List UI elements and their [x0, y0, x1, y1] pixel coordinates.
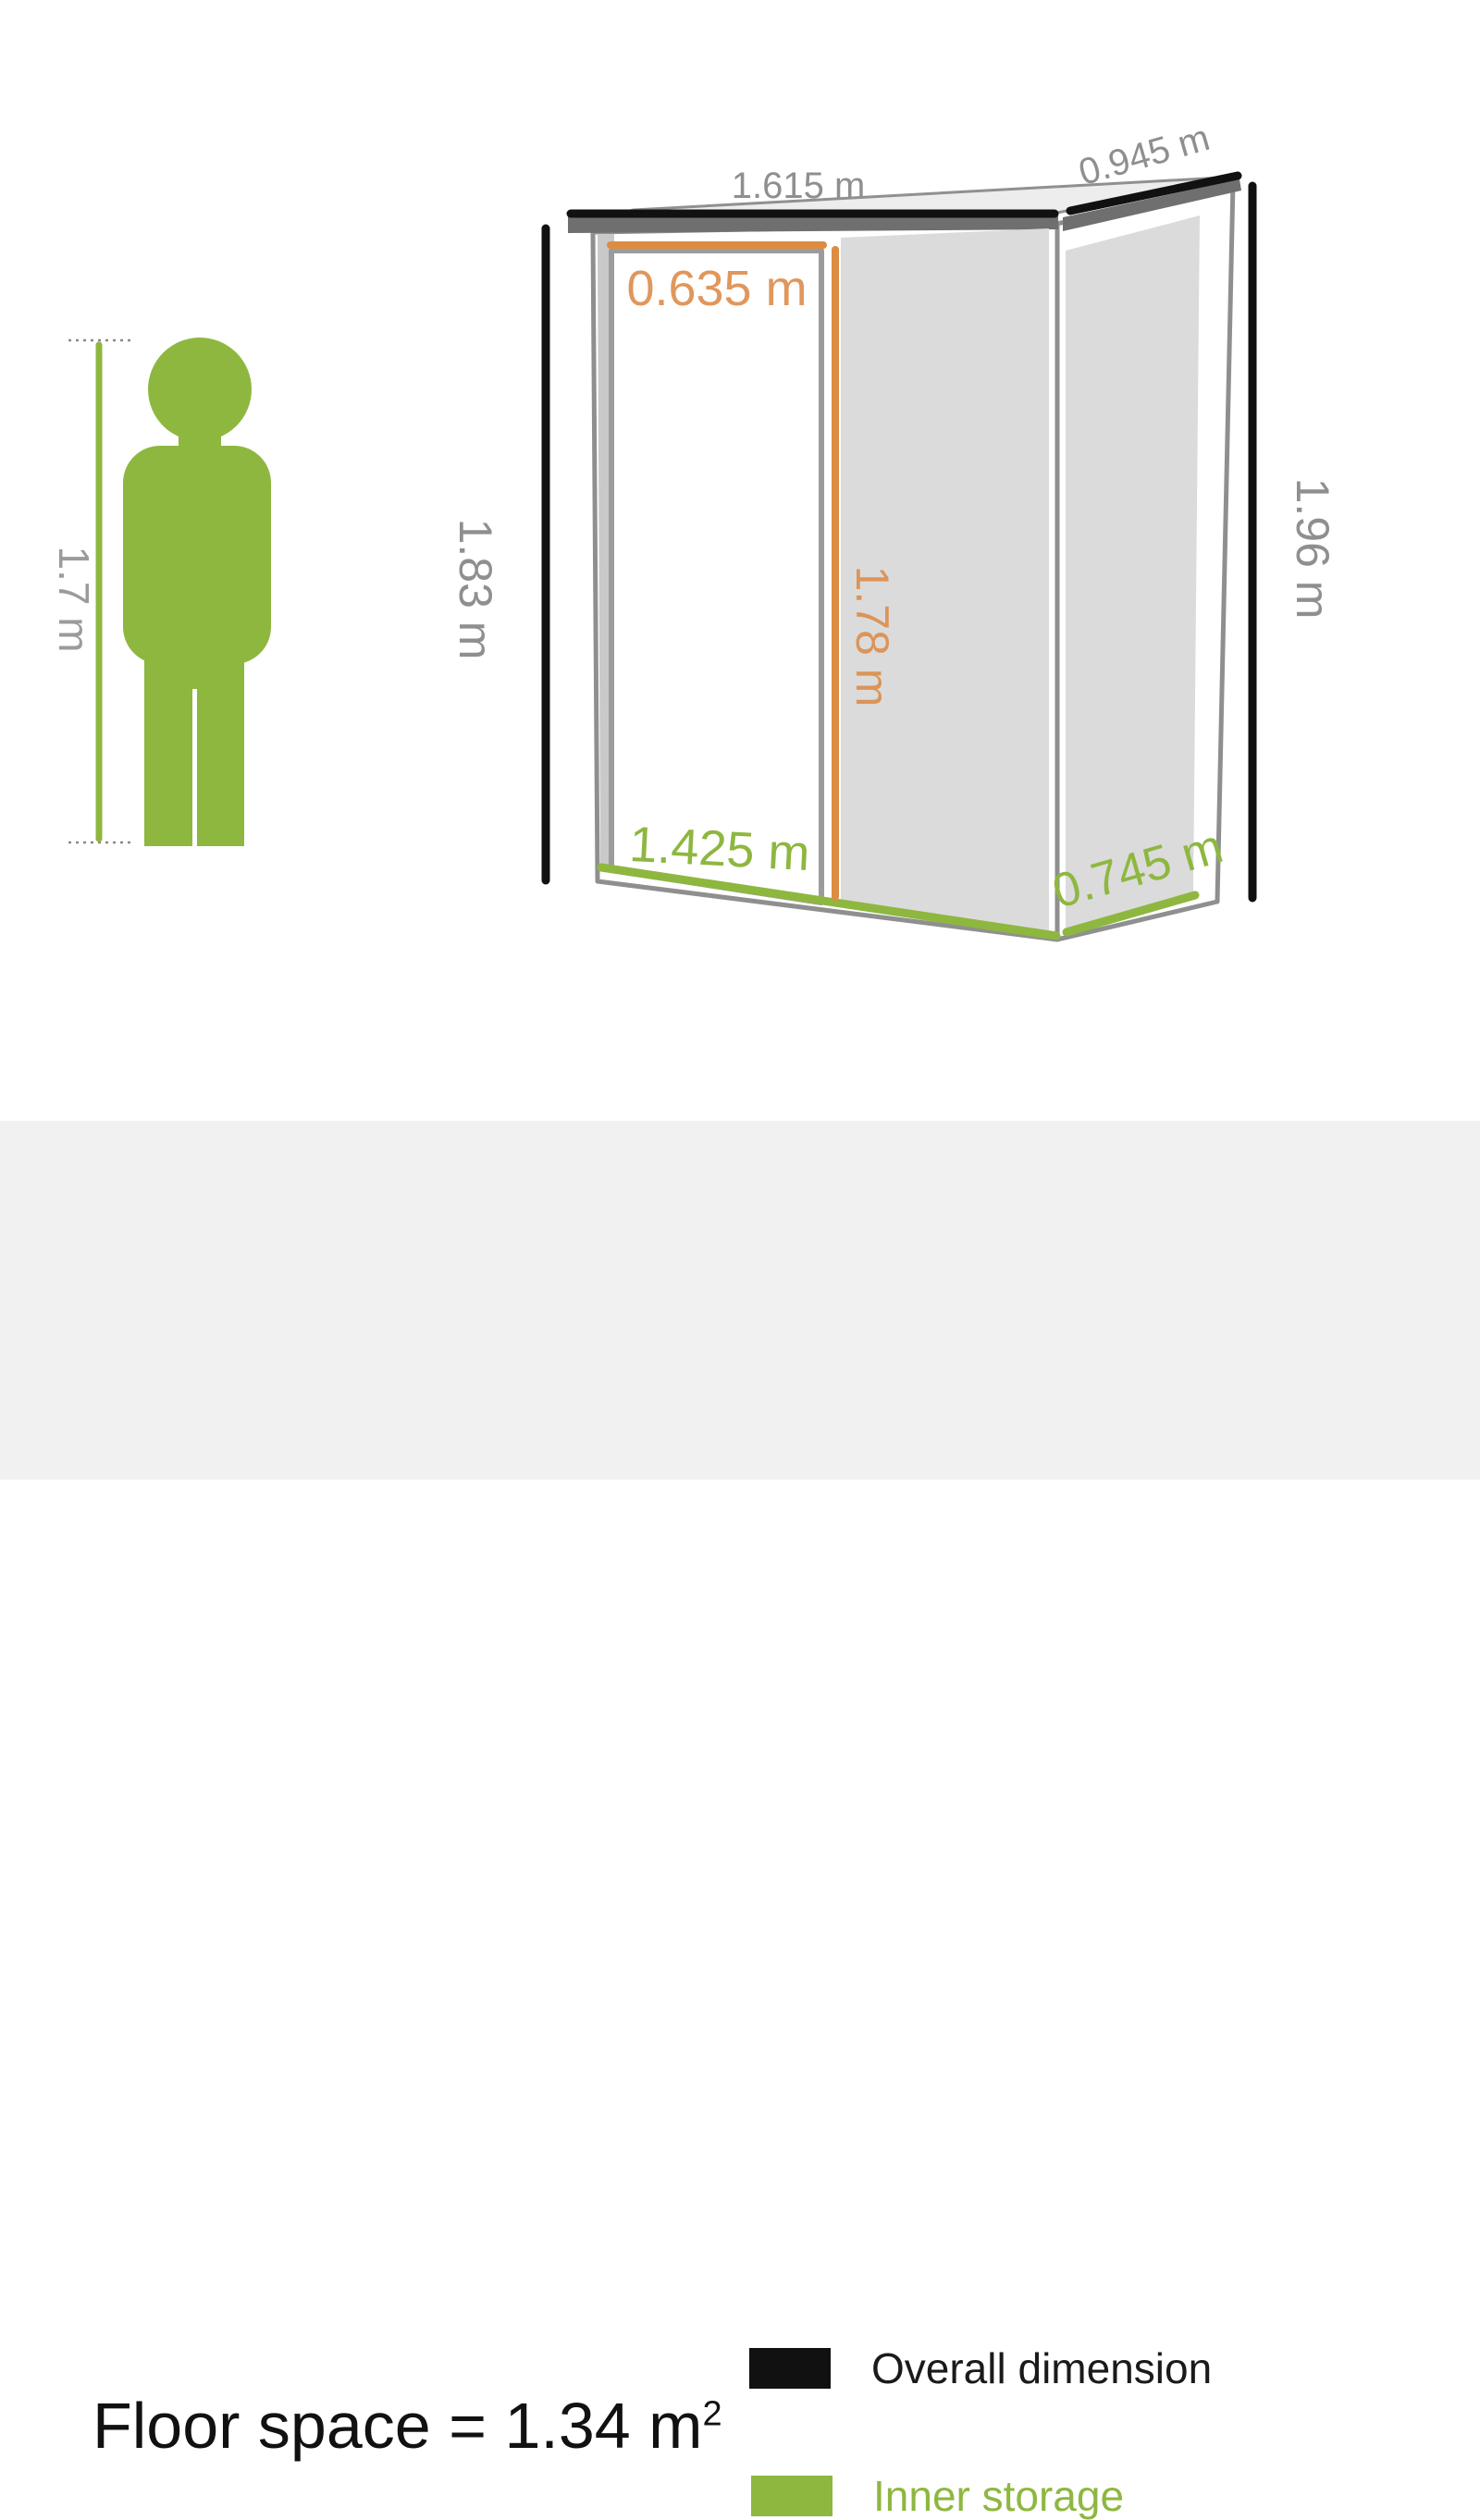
info-panel: Floor space = 1.34 m2 Overall dimension …	[0, 1121, 1480, 1480]
shed-drawing: 1.615 m 0.945 m 1.83 m 1.96 m 0.635 m 1.…	[450, 117, 1338, 940]
front-height-label: 1.83 m	[450, 519, 501, 660]
person-head	[148, 338, 252, 441]
person-torso	[123, 446, 271, 664]
person-leg-divider	[192, 689, 197, 846]
inner-height-label: 1.78 m	[846, 566, 898, 707]
inner-width-label: 1.425 m	[628, 817, 811, 881]
person-height-reference: 1.7 m	[50, 338, 271, 846]
inner-storage-swatch	[751, 2476, 832, 2516]
legend-item-overall: Overall dimension	[749, 2347, 1212, 2390]
overall-height-label: 1.96 m	[1287, 478, 1338, 620]
shed-door-panel	[611, 251, 821, 903]
door-width-label: 0.635 m	[626, 261, 807, 316]
floor-space-exponent: 2	[703, 2395, 722, 2434]
floor-space-text: Floor space = 1.34 m2	[92, 2393, 722, 2458]
person-silhouette	[123, 338, 271, 846]
shed-side-wall-shading	[1066, 215, 1200, 930]
legend-item-inner: Inner storage	[751, 2475, 1124, 2517]
person-height-label: 1.7 m	[50, 546, 98, 652]
overall-width-label: 1.615 m	[732, 166, 866, 206]
overall-dimension-label: Overall dimension	[871, 2347, 1212, 2390]
floor-space-value: Floor space = 1.34 m	[92, 2390, 703, 2462]
inner-storage-label: Inner storage	[873, 2475, 1124, 2517]
dimension-diagram: 1.7 m 1.615 m 0.945 m 1.83 m 1.96 m	[0, 0, 1480, 1121]
overall-dimension-swatch	[749, 2348, 831, 2389]
